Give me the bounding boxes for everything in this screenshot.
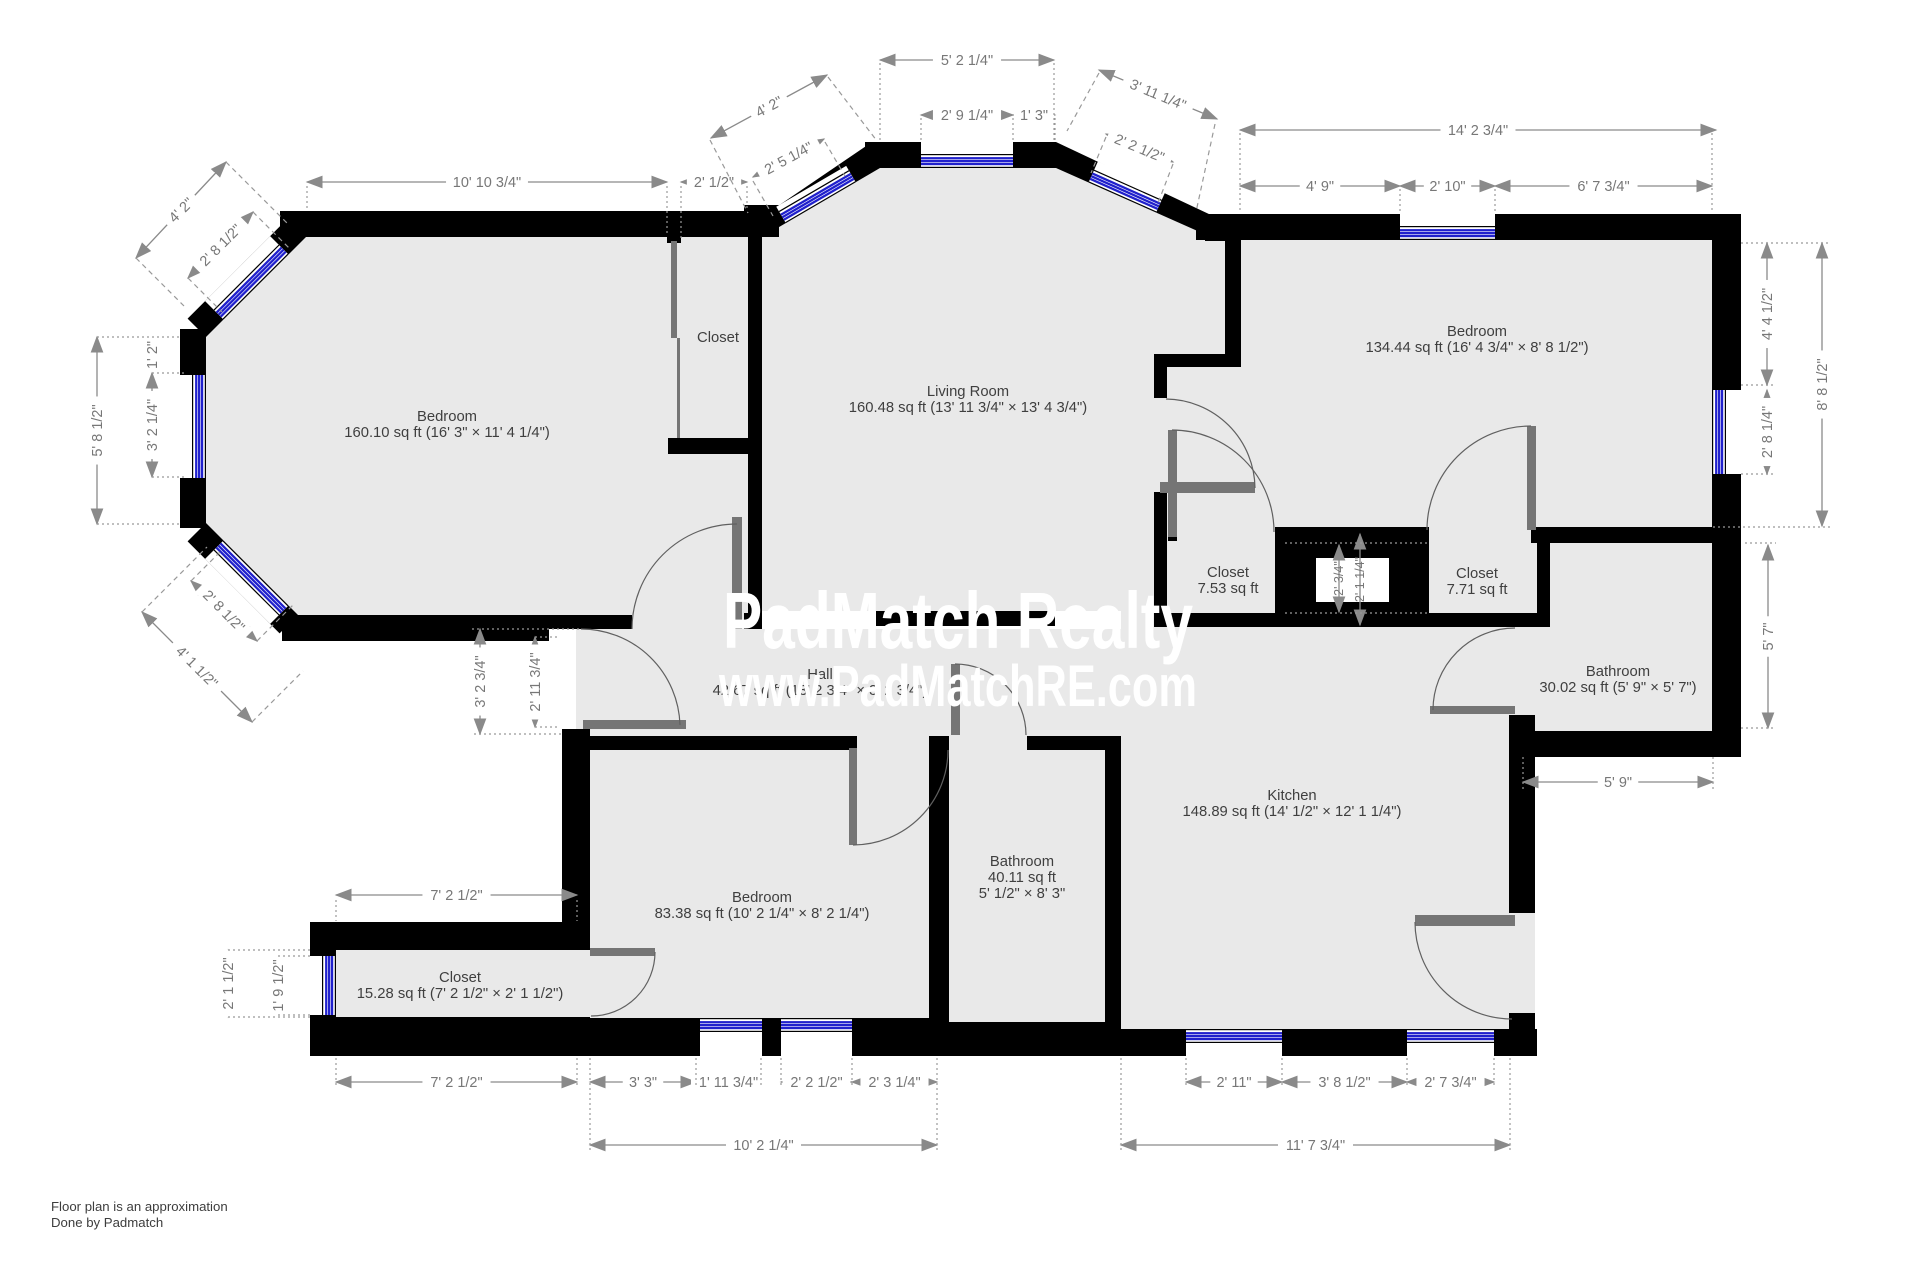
svg-text:2' 3 1/4": 2' 3 1/4" — [868, 1075, 920, 1091]
svg-text:www.PadMatchRE.com: www.PadMatchRE.com — [718, 654, 1197, 719]
svg-text:5' 9": 5' 9" — [1604, 775, 1632, 791]
svg-text:8' 8 1/2": 8' 8 1/2" — [1815, 358, 1831, 410]
svg-text:160.10 sq ft (16' 3" × 11' 4 1: 160.10 sq ft (16' 3" × 11' 4 1/4") — [344, 425, 550, 441]
svg-text:134.44 sq ft (16' 4 3/4" × 8': 134.44 sq ft (16' 4 3/4" × 8' 8 1/2") — [1365, 340, 1588, 356]
svg-text:1' 11 3/4": 1' 11 3/4" — [699, 1075, 758, 1091]
svg-text:2' 3/4": 2' 3/4" — [1332, 561, 1346, 596]
svg-text:2' 8 1/4": 2' 8 1/4" — [1760, 406, 1776, 458]
svg-text:2' 11": 2' 11" — [1216, 1075, 1251, 1091]
svg-text:2' 9 1/4": 2' 9 1/4" — [941, 108, 993, 124]
svg-text:Closet: Closet — [1207, 565, 1249, 581]
svg-text:2' 1/2": 2' 1/2" — [694, 175, 734, 191]
svg-text:2' 1 1/2": 2' 1 1/2" — [221, 957, 237, 1009]
svg-text:3' 8 1/2": 3' 8 1/2" — [1318, 1075, 1370, 1091]
svg-text:Bathroom: Bathroom — [990, 854, 1054, 870]
svg-text:15.28 sq ft (7' 2 1/2" × 2' 1: 15.28 sq ft (7' 2 1/2" × 2' 1 1/2") — [357, 986, 564, 1002]
svg-text:14' 2 3/4": 14' 2 3/4" — [1448, 123, 1508, 139]
svg-text:5' 1/2" × 8' 3": 5' 1/2" × 8' 3" — [979, 886, 1066, 902]
svg-text:4' 4 1/2": 4' 4 1/2" — [1760, 288, 1776, 340]
svg-text:2' 7 3/4": 2' 7 3/4" — [1424, 1075, 1476, 1091]
svg-text:30.02 sq ft (5' 9" × 5' 7"): 30.02 sq ft (5' 9" × 5' 7") — [1539, 680, 1696, 696]
svg-text:Closet: Closet — [439, 970, 481, 986]
svg-text:5' 2 1/4": 5' 2 1/4" — [941, 53, 993, 69]
svg-text:2' 10": 2' 10" — [1429, 179, 1465, 195]
svg-text:3' 2 1/4": 3' 2 1/4" — [145, 399, 161, 451]
svg-text:2' 2 1/2": 2' 2 1/2" — [790, 1075, 842, 1091]
svg-text:Done by Padmatch: Done by Padmatch — [51, 1215, 163, 1230]
svg-text:3' 3": 3' 3" — [629, 1075, 657, 1091]
svg-text:1' 3": 1' 3" — [1020, 108, 1048, 124]
svg-text:Bedroom: Bedroom — [1447, 324, 1507, 340]
svg-text:Bathroom: Bathroom — [1586, 664, 1650, 680]
svg-text:Bedroom: Bedroom — [417, 409, 477, 425]
svg-text:5' 8 1/2": 5' 8 1/2" — [90, 404, 106, 456]
svg-text:83.38 sq ft (10' 2 1/4" × 8' 2: 83.38 sq ft (10' 2 1/4" × 8' 2 1/4") — [655, 906, 870, 922]
svg-text:1' 9 1/2": 1' 9 1/2" — [271, 959, 287, 1011]
svg-text:7.71 sq ft: 7.71 sq ft — [1447, 582, 1508, 598]
svg-text:PadMatch Realty: PadMatch Realty — [723, 576, 1193, 665]
svg-text:7' 2 1/2": 7' 2 1/2" — [430, 888, 482, 904]
svg-text:160.48 sq ft (13' 11 3/4" × 13: 160.48 sq ft (13' 11 3/4" × 13' 4 3/4") — [849, 400, 1087, 416]
svg-text:Kitchen: Kitchen — [1267, 788, 1316, 804]
svg-text:5' 7": 5' 7" — [1761, 622, 1777, 650]
svg-text:2' 11 3/4": 2' 11 3/4" — [528, 652, 544, 711]
svg-text:10' 10 3/4": 10' 10 3/4" — [453, 175, 521, 191]
svg-text:40.11 sq ft: 40.11 sq ft — [988, 870, 1056, 886]
svg-text:Bedroom: Bedroom — [732, 890, 792, 906]
svg-text:11' 7 3/4": 11' 7 3/4" — [1286, 1138, 1345, 1154]
svg-text:1' 2": 1' 2" — [145, 341, 161, 369]
svg-text:4' 9": 4' 9" — [1306, 179, 1334, 195]
svg-text:Living Room: Living Room — [927, 384, 1009, 400]
svg-text:10' 2 1/4": 10' 2 1/4" — [733, 1138, 793, 1154]
svg-text:2' 1 1/4": 2' 1 1/4" — [1353, 557, 1367, 602]
svg-text:148.89 sq ft (14' 1/2" × 12' 1: 148.89 sq ft (14' 1/2" × 12' 1 1/4") — [1183, 804, 1402, 820]
svg-text:Floor plan is an approximation: Floor plan is an approximation — [51, 1199, 228, 1214]
svg-text:3' 2 3/4": 3' 2 3/4" — [473, 655, 489, 707]
svg-text:7.53 sq ft: 7.53 sq ft — [1198, 581, 1259, 597]
svg-text:Closet: Closet — [697, 330, 739, 346]
svg-text:7' 2 1/2": 7' 2 1/2" — [430, 1075, 482, 1091]
svg-text:6' 7 3/4": 6' 7 3/4" — [1577, 179, 1629, 195]
svg-text:Closet: Closet — [1456, 566, 1498, 582]
